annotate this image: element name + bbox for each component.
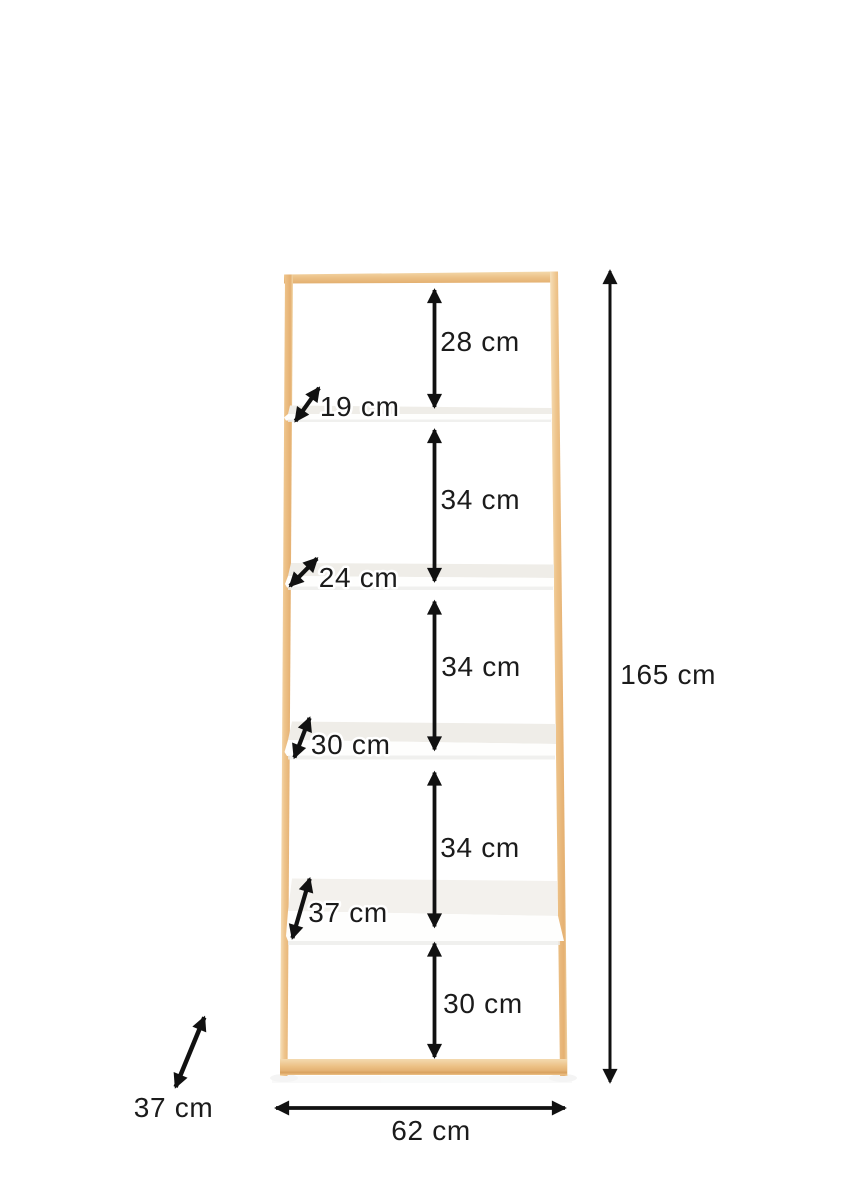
svg-text:37 cm: 37 cm	[308, 897, 388, 928]
svg-text:19 cm: 19 cm	[320, 391, 400, 422]
svg-text:37 cm: 37 cm	[134, 1092, 214, 1123]
svg-text:24 cm: 24 cm	[319, 562, 399, 593]
svg-text:30 cm: 30 cm	[443, 988, 523, 1019]
svg-text:34 cm: 34 cm	[441, 484, 521, 515]
svg-text:30 cm: 30 cm	[311, 729, 391, 760]
svg-text:62 cm: 62 cm	[391, 1115, 471, 1146]
svg-text:165 cm: 165 cm	[620, 659, 716, 690]
svg-text:28 cm: 28 cm	[440, 326, 520, 357]
svg-text:34 cm: 34 cm	[441, 651, 521, 682]
svg-text:34 cm: 34 cm	[440, 832, 520, 863]
